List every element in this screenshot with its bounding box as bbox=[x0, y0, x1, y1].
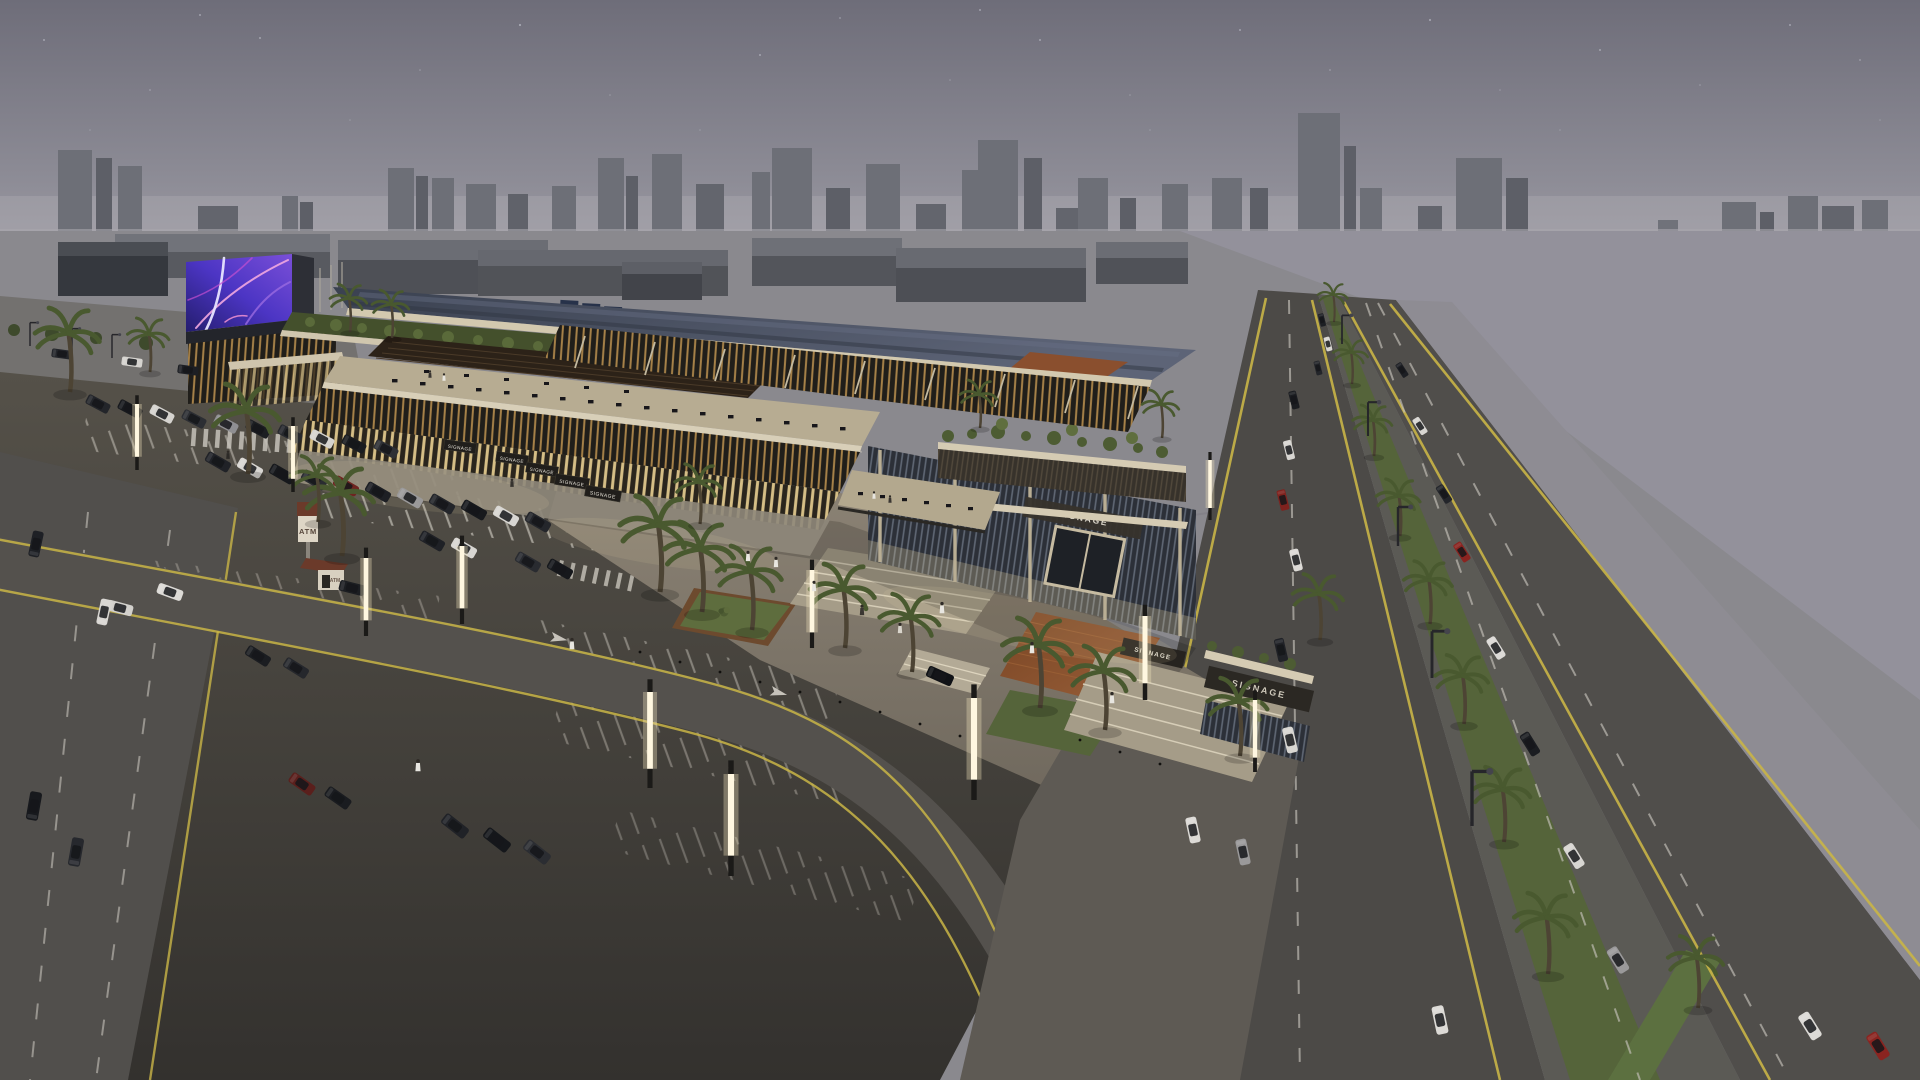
architectural-render: SIGNAGE SIGNAGE SIGNAGE SIGNAGE SIGNAGE … bbox=[0, 0, 1920, 1080]
entrance-portal bbox=[1045, 526, 1125, 596]
render-canvas: SIGNAGE SIGNAGE SIGNAGE SIGNAGE SIGNAGE … bbox=[0, 0, 1920, 1080]
led-screen-side bbox=[292, 254, 314, 320]
atm-kiosk-label: ATM bbox=[330, 578, 340, 584]
